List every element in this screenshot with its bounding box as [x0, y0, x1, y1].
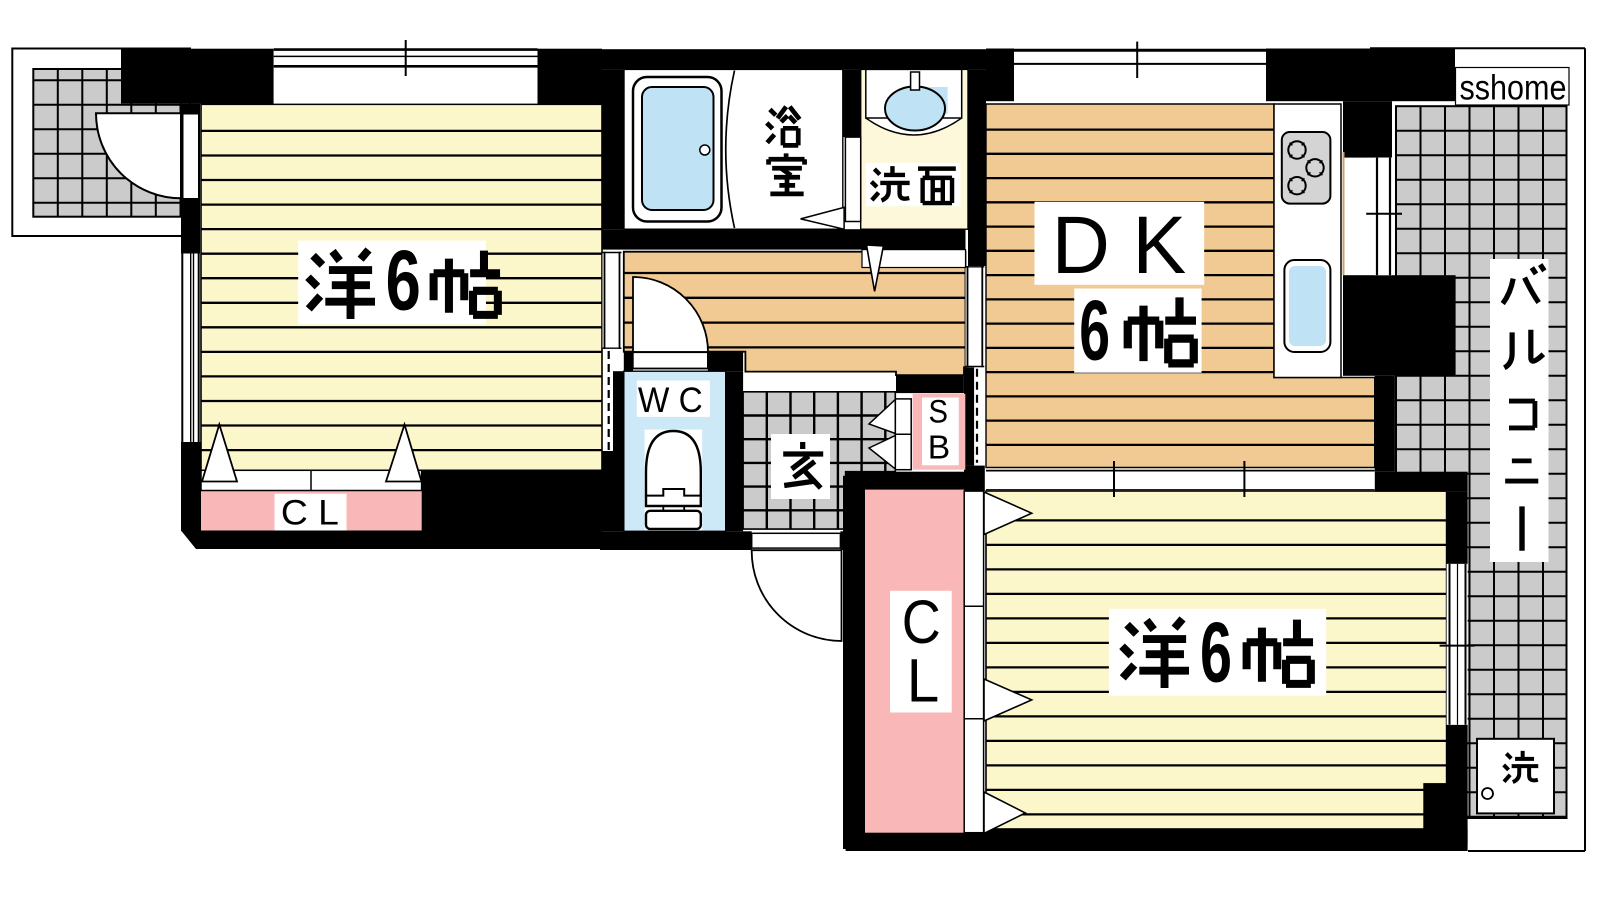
svg-text:sshome: sshome	[1460, 69, 1567, 108]
svg-text:B: B	[928, 429, 950, 466]
svg-text:6: 6	[386, 234, 421, 329]
svg-text:6: 6	[1079, 283, 1110, 378]
svg-text:W C: W C	[638, 380, 703, 420]
svg-text:6: 6	[1200, 606, 1232, 701]
svg-text:S: S	[929, 394, 949, 430]
svg-text:L: L	[907, 647, 940, 715]
svg-text:C L: C L	[281, 494, 339, 533]
svg-text:D K: D K	[1052, 200, 1187, 291]
